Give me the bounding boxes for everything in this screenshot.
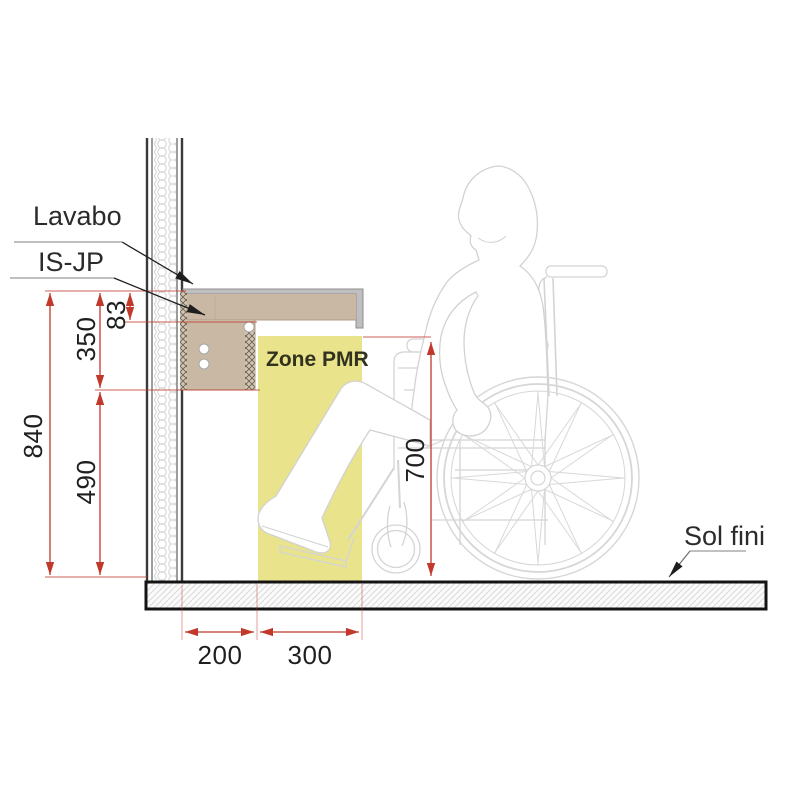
lavabo-label: Lavabo — [33, 201, 122, 231]
dim-840-value: 840 — [18, 414, 48, 459]
floor-slab — [146, 582, 766, 609]
wall-section — [147, 138, 182, 582]
accessibility-section-diagram: Lavabo IS-JP Sol fini Zone PMR 840 350 4… — [0, 0, 800, 800]
diagram-svg: Lavabo IS-JP Sol fini Zone PMR 840 350 4… — [0, 0, 800, 800]
zone-pmr-label: Zone PMR — [266, 348, 369, 371]
dim-700-value: 700 — [400, 438, 430, 483]
dim-300-value: 300 — [288, 640, 333, 670]
person-torso-head — [412, 166, 548, 440]
counter-top — [183, 294, 356, 320]
support-frame — [186, 320, 255, 390]
dim-83-value: 83 — [101, 300, 131, 330]
caster-wheel — [372, 525, 420, 573]
push-handle — [546, 266, 607, 277]
isjp-label: IS-JP — [38, 247, 104, 277]
dim-350-value: 350 — [71, 317, 101, 362]
dim-200-value: 200 — [198, 640, 243, 670]
fixing-hole — [199, 344, 209, 354]
fixing-hole — [244, 322, 254, 332]
wall-insulation — [154, 138, 176, 582]
dim-490-value: 490 — [71, 460, 101, 505]
solfini-label: Sol fini — [684, 521, 765, 551]
fixing-hole — [199, 359, 209, 369]
wheel-hub — [525, 465, 551, 491]
solfini-leader — [669, 551, 690, 577]
front-batten — [245, 332, 255, 390]
